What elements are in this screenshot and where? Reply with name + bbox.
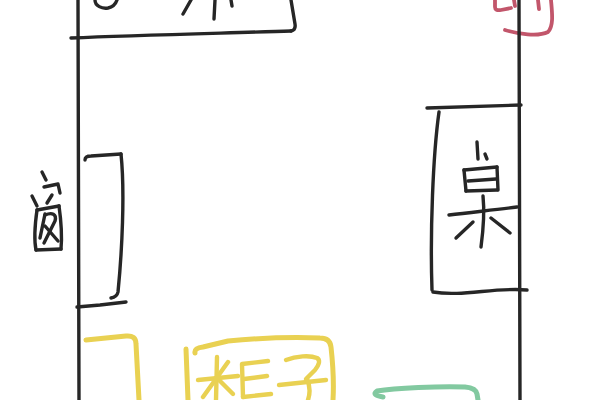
green-item-outline xyxy=(375,387,478,400)
bed-box xyxy=(71,0,295,38)
red-mark-mid-stroke xyxy=(538,0,539,9)
char-tick xyxy=(231,0,232,6)
table-char xyxy=(449,142,517,247)
window-char-box-bottom xyxy=(36,249,61,250)
window-bracket xyxy=(77,154,126,307)
left-wall xyxy=(78,0,79,400)
red-mark-tick xyxy=(514,0,515,6)
table-char-box-left xyxy=(464,170,466,191)
green-item-top-edge xyxy=(375,387,478,400)
floor-plan-sketch xyxy=(0,0,600,400)
red-mark-hook-stroke xyxy=(505,0,552,35)
table-char-box-top xyxy=(464,167,497,170)
cabinet-bracket xyxy=(86,336,139,400)
cabinet-char xyxy=(198,356,326,400)
window-char-roof xyxy=(44,184,60,193)
cabinet-char1-right-leg xyxy=(220,381,233,394)
bed-box-right-edge xyxy=(291,0,295,31)
red-mark-strokes xyxy=(495,0,552,35)
table-char-box-bottom xyxy=(466,190,497,191)
table-char-left-leg xyxy=(456,222,473,238)
window-bracket-top xyxy=(85,154,121,160)
red-mark-left-hook xyxy=(495,0,511,10)
table-char-top-tick xyxy=(477,142,478,159)
sketch-canvas xyxy=(0,0,600,400)
table-box-top xyxy=(427,105,521,108)
window-char-left-dot xyxy=(32,196,37,206)
bed-box-bottom-edge xyxy=(71,31,291,38)
table-char-vertical xyxy=(481,196,484,247)
char-vertical xyxy=(214,0,215,19)
table-box-bottom xyxy=(433,289,527,293)
table-char-dot xyxy=(485,154,487,159)
char-u-curve xyxy=(95,0,117,8)
table-group xyxy=(427,105,527,293)
cabinet-group xyxy=(86,336,333,400)
cabinet-char2-head xyxy=(286,356,319,379)
window-bracket-bottom xyxy=(77,302,126,307)
window-char-box-top xyxy=(37,206,59,210)
char-diagonal xyxy=(183,0,191,14)
cabinet-char2-horizontal xyxy=(279,380,326,385)
cabinet-left-line xyxy=(186,349,188,400)
cabinet-char1-ju-mid xyxy=(244,376,267,379)
table-char-right-leg xyxy=(491,218,510,233)
cabinet-char2-hook xyxy=(307,379,310,400)
window-char-box-left xyxy=(35,210,37,250)
table-box-left xyxy=(431,112,439,290)
window-char-small-diag xyxy=(47,195,52,203)
window-char-dot xyxy=(42,172,46,180)
window-char-box-right xyxy=(59,206,61,249)
bed-box-cropped-char xyxy=(95,0,232,19)
window-char xyxy=(32,172,61,250)
cabinet-char1-ju-bottom xyxy=(243,394,271,397)
window-bracket-side xyxy=(111,154,123,298)
right-wall xyxy=(519,0,520,400)
table-char-box-mid xyxy=(468,179,496,181)
table-box xyxy=(427,105,527,293)
